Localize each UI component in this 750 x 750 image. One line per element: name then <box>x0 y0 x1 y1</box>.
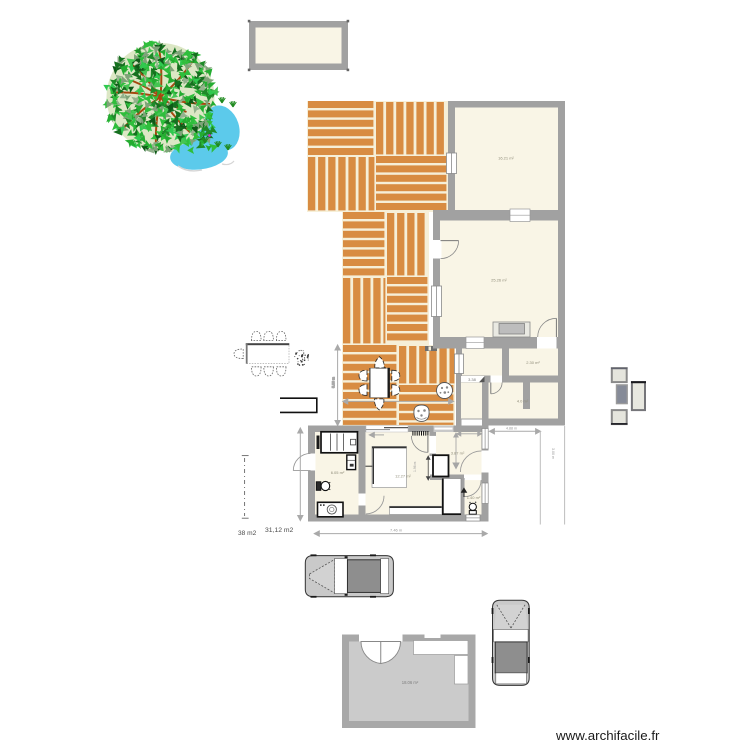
svg-text:1.40 m²: 1.40 m² <box>467 495 481 500</box>
svg-text:2.30 m²: 2.30 m² <box>526 360 540 365</box>
svg-text:38 m2: 38 m2 <box>238 530 257 537</box>
svg-text:1.96 m: 1.96 m <box>413 461 417 472</box>
svg-text:4.88 m: 4.88 m <box>506 427 517 431</box>
svg-text:3.87 m²: 3.87 m² <box>451 451 465 456</box>
svg-text:25.26 m²: 25.26 m² <box>491 278 507 283</box>
svg-text:18.06 m²: 18.06 m² <box>402 680 419 685</box>
svg-text:6.05 m²: 6.05 m² <box>331 470 345 475</box>
svg-text:31,12 m2: 31,12 m2 <box>265 527 294 534</box>
svg-text:3.00 m: 3.00 m <box>551 448 555 459</box>
svg-text:7.46 m: 7.46 m <box>390 528 403 533</box>
svg-text:4.0 m²: 4.0 m² <box>517 399 529 404</box>
svg-text:16.21 m²: 16.21 m² <box>498 156 514 161</box>
svg-text:www.archifacile.fr: www.archifacile.fr <box>555 728 660 743</box>
svg-text:3.38: 3.38 <box>468 377 477 382</box>
svg-text:12.27 m²: 12.27 m² <box>395 474 411 479</box>
svg-text:5.80 m: 5.80 m <box>332 377 336 388</box>
